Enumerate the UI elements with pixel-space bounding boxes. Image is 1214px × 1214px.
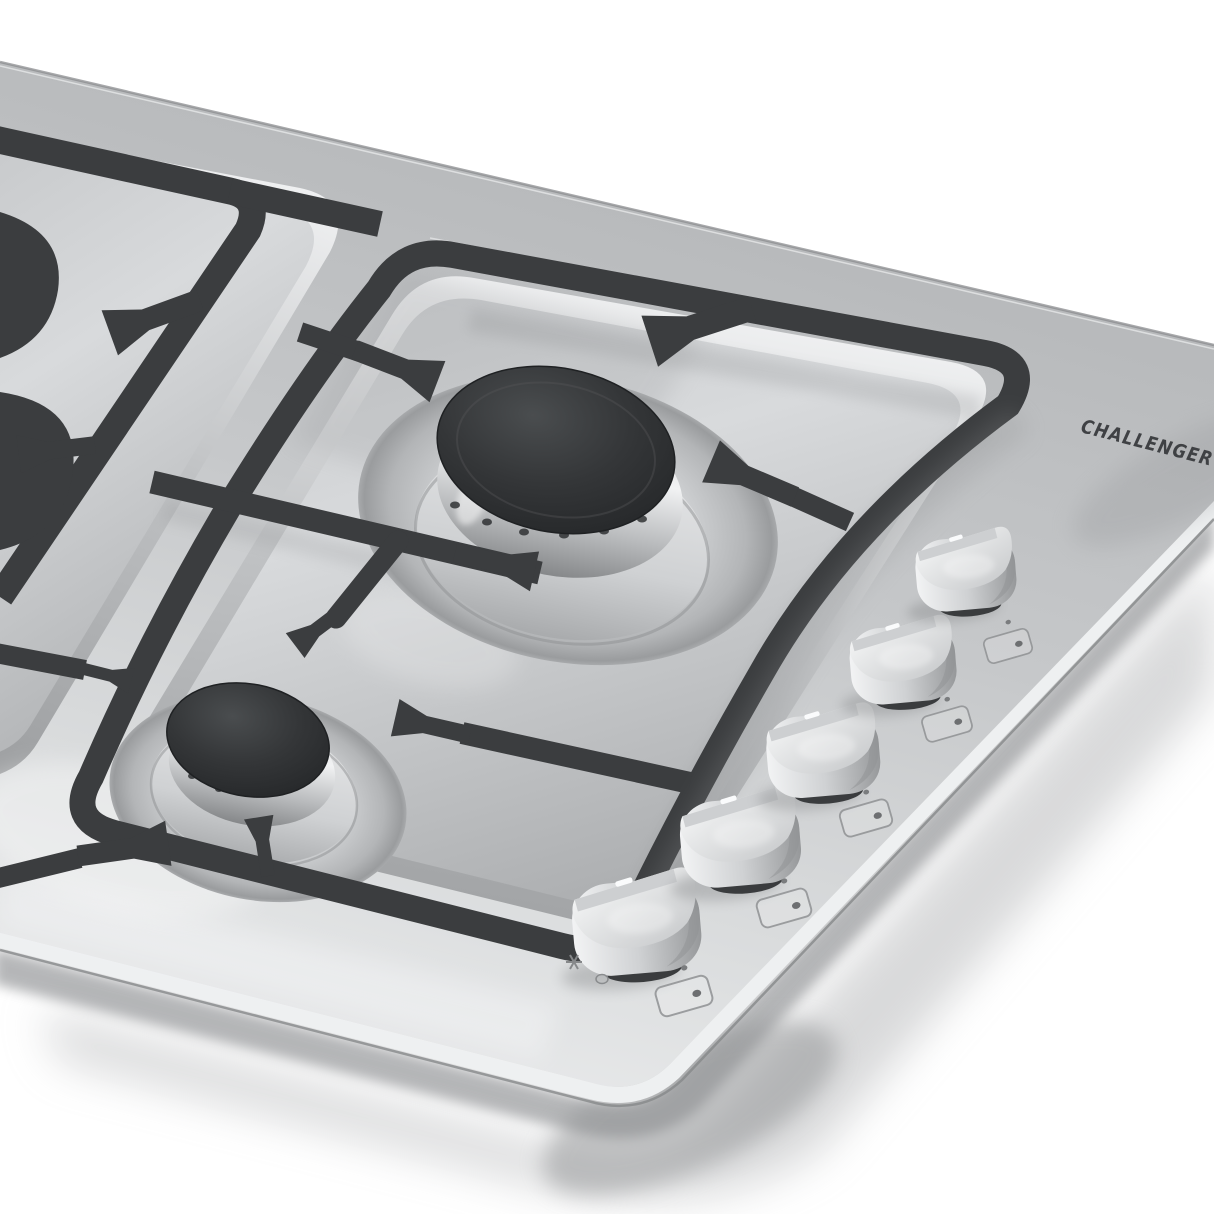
product-photo-gas-cooktop: CHALLENGER	[0, 0, 1214, 1214]
